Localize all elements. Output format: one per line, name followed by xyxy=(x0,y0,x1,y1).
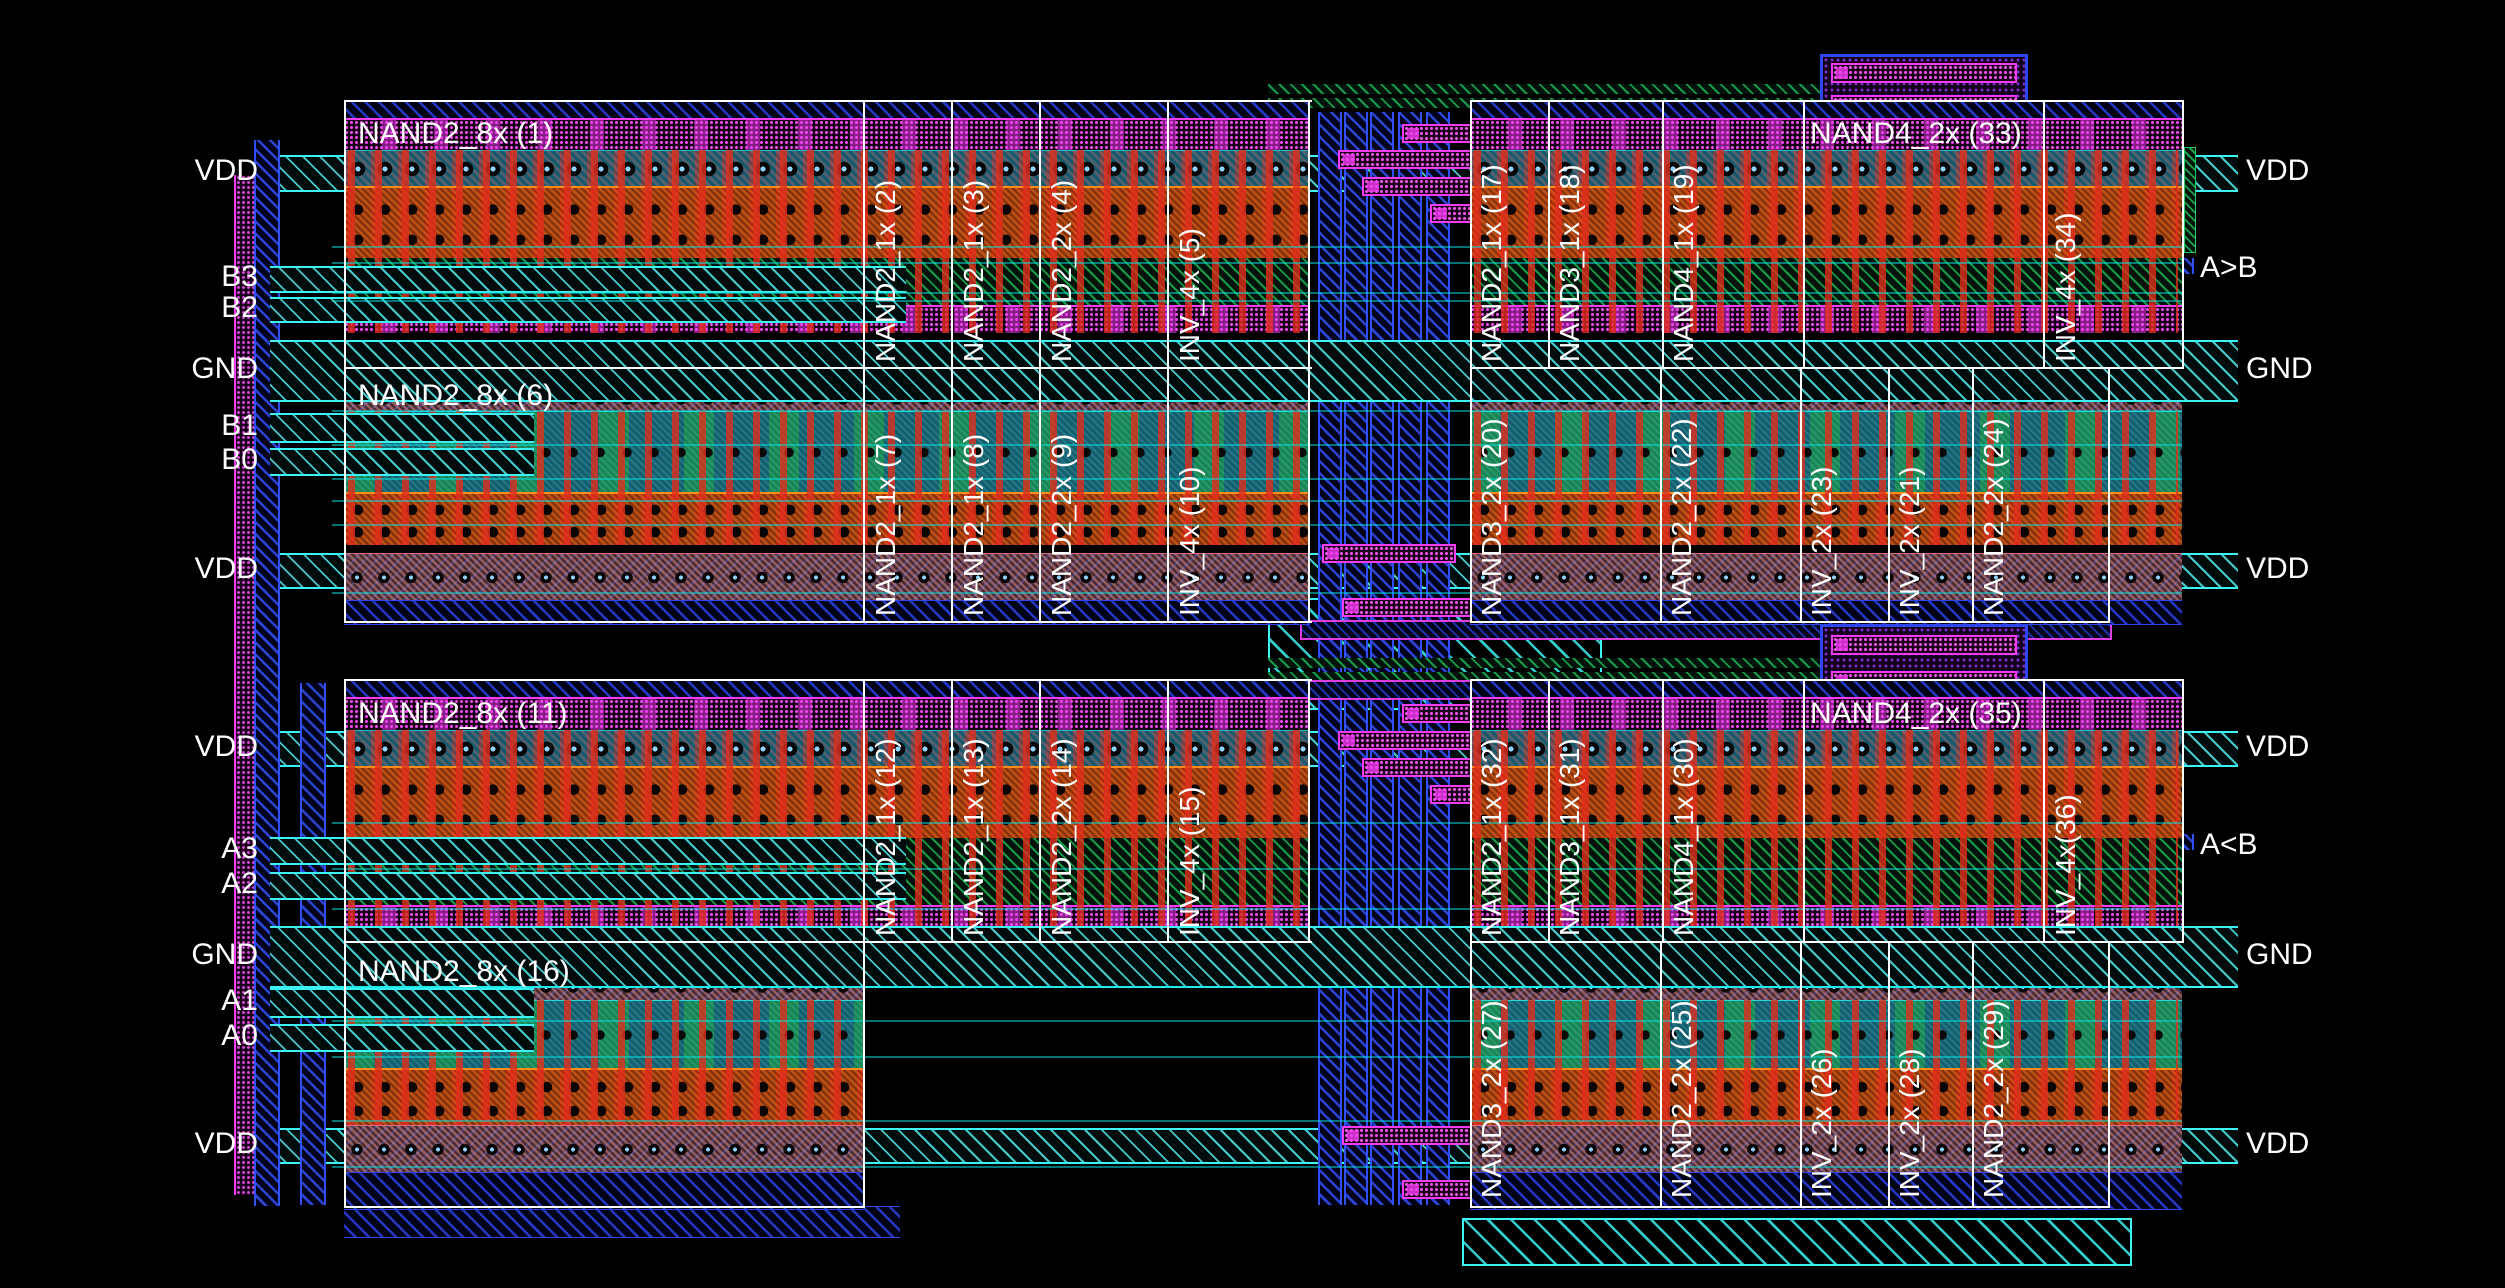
cell-label-nand3-2x-20[interactable]: NAND3_2x (20) xyxy=(1474,376,1510,616)
cell-label-nand2-1x-8[interactable]: NAND2_1x (8) xyxy=(956,376,992,616)
cell-boundary xyxy=(2043,679,2045,943)
cell-label-nand2-8x-11[interactable]: NAND2_8x (11) xyxy=(358,698,568,730)
layout-canvas[interactable]: VDD B3 B2 GND B1 B0 VDD VDD A3 A2 GND A1… xyxy=(0,0,2505,1288)
cell-boundary xyxy=(1660,943,1662,1208)
cell-boundary xyxy=(1972,368,1974,623)
cell-boundary xyxy=(1039,100,1041,623)
cell-label-nand2-2x-22[interactable]: NAND2_2x (22) xyxy=(1664,376,1700,616)
cell-boundary xyxy=(1167,679,1169,943)
via-strap xyxy=(1322,544,1456,563)
pin-band-b1 xyxy=(270,413,534,443)
cell-label-nand2-2x-25[interactable]: NAND2_2x (25) xyxy=(1664,950,1700,1198)
pin-label-vdd[interactable]: VDD xyxy=(2246,1127,2309,1161)
cell-label-inv-2x-26[interactable]: INV_2x (26) xyxy=(1804,950,1840,1198)
cell-label-nand2-2x-29[interactable]: NAND2_2x (29) xyxy=(1976,950,2012,1198)
cell-boundary xyxy=(1470,367,2184,369)
routing-trace xyxy=(332,246,2182,248)
cell-label-inv-4x-5[interactable]: INV_4x (5) xyxy=(1172,106,1208,362)
cell-boundary xyxy=(2108,943,2110,1208)
routing-trace xyxy=(332,908,2182,910)
pin-label-vdd[interactable]: VDD xyxy=(150,730,258,764)
pin-band-b3 xyxy=(270,266,906,293)
pin-label-a3[interactable]: A3 xyxy=(150,832,258,866)
cell-boundary xyxy=(951,679,953,943)
cell-boundary xyxy=(2182,100,2184,368)
routing-trace xyxy=(332,822,2182,824)
cell-boundary xyxy=(2043,100,2045,368)
cell-label-inv-4x-34[interactable]: INV_4x (34) xyxy=(2048,106,2084,362)
cell-label-nand2-1x-3[interactable]: NAND2_1x (3) xyxy=(956,106,992,362)
pin-label-vdd[interactable]: VDD xyxy=(2246,552,2309,586)
cell-boundary xyxy=(1800,943,1802,1208)
pin-band-a2 xyxy=(270,872,906,900)
metal-bus-strap xyxy=(344,1206,900,1238)
cell-boundary xyxy=(1800,368,1802,623)
cell-label-nand2-1x-13[interactable]: NAND2_1x (13) xyxy=(956,686,992,936)
cell-label-nand2-2x-4[interactable]: NAND2_2x (4) xyxy=(1044,106,1080,362)
rail-gap xyxy=(344,545,1310,553)
via-strap xyxy=(1831,63,2017,83)
cell-boundary xyxy=(1470,679,1472,1208)
routing-channel-block xyxy=(1462,1218,2132,1266)
pin-band-a1 xyxy=(270,988,534,1018)
well-routing-band xyxy=(1268,84,1858,94)
cell-boundary xyxy=(1972,943,1974,1208)
cell-boundary xyxy=(863,100,865,623)
cell-label-inv-4x-10[interactable]: INV_4x (10) xyxy=(1172,376,1208,616)
cell-boundary xyxy=(1888,368,1890,623)
cell-label-nand4-1x-19[interactable]: NAND4_1x (19) xyxy=(1666,106,1702,362)
cell-boundary xyxy=(1167,100,1169,623)
pin-label-a0[interactable]: A0 xyxy=(150,1019,258,1053)
pin-band-a0 xyxy=(270,1024,534,1052)
cell-label-nand3-2x-27[interactable]: NAND3_2x (27) xyxy=(1474,950,1510,1198)
cell-label-nand3-1x-31[interactable]: NAND3_1x (31) xyxy=(1552,686,1588,936)
routing-trace xyxy=(332,262,2182,264)
pin-label-gnd[interactable]: GND xyxy=(150,352,258,386)
rail-strap xyxy=(344,553,1310,602)
cell-boundary xyxy=(1470,1206,2110,1208)
pin-label-b2[interactable]: B2 xyxy=(150,291,258,325)
cell-label-nand4-1x-30[interactable]: NAND4_1x (30) xyxy=(1666,686,1702,936)
cell-boundary xyxy=(1548,100,1550,368)
pin-band-b0 xyxy=(270,448,534,476)
cell-label-nand3-1x-18[interactable]: NAND3_1x (18) xyxy=(1552,106,1588,362)
pin-label-a-gt-b[interactable]: A>B xyxy=(2200,251,2258,285)
cell-label-nand4-2x-33[interactable]: NAND4_2x (33) xyxy=(1810,118,2022,150)
cell-label-nand2-8x-16[interactable]: NAND2_8x (16) xyxy=(358,956,570,988)
pin-label-b0[interactable]: B0 xyxy=(150,443,258,477)
cell-boundary xyxy=(951,100,953,623)
cell-label-nand2-2x-24[interactable]: NAND2_2x (24) xyxy=(1976,376,2012,616)
poly-fingers xyxy=(348,1000,859,1125)
cell-boundary xyxy=(1888,943,1890,1208)
cell-boundary xyxy=(1470,100,2184,102)
cell-boundary xyxy=(1308,679,1310,943)
cell-label-nand2-1x-17[interactable]: NAND2_1x (17) xyxy=(1474,106,1510,362)
cell-boundary xyxy=(344,679,346,1208)
cell-boundary xyxy=(1662,679,1664,943)
cell-label-nand2-1x-7[interactable]: NAND2_1x (7) xyxy=(868,376,904,616)
pin-label-a-lt-b[interactable]: A<B xyxy=(2200,828,2258,862)
pin-label-a2[interactable]: A2 xyxy=(150,867,258,901)
pin-label-b3[interactable]: B3 xyxy=(150,260,258,294)
routing-trace xyxy=(332,292,2182,294)
cell-label-nand2-1x-2[interactable]: NAND2_1x (2) xyxy=(868,106,904,362)
output-stub xyxy=(2184,147,2196,253)
pin-label-gnd[interactable]: GND xyxy=(2246,938,2313,972)
cell-boundary xyxy=(1470,100,1472,623)
pin-band-a3 xyxy=(270,837,906,865)
pin-label-vdd[interactable]: VDD xyxy=(2246,154,2309,188)
cell-boundary xyxy=(1660,368,1662,623)
pin-label-vdd[interactable]: VDD xyxy=(150,552,258,586)
cell-label-nand2-2x-14[interactable]: NAND2_2x (14) xyxy=(1044,686,1080,936)
pin-label-vdd[interactable]: VDD xyxy=(150,154,258,188)
cell-boundary xyxy=(1662,100,1664,368)
metal-band xyxy=(344,1172,863,1210)
cell-boundary xyxy=(863,679,865,1208)
cell-boundary xyxy=(1548,679,1550,943)
cell-label-inv-2x-28[interactable]: INV_2x (28) xyxy=(1892,950,1928,1198)
cell-boundary xyxy=(1470,621,2110,623)
pin-label-gnd[interactable]: GND xyxy=(2246,352,2313,386)
cell-boundary xyxy=(1803,679,1805,943)
cell-label-inv-4x-15[interactable]: INV_4x (15) xyxy=(1172,686,1208,936)
cell-label-nand2-1x-12[interactable]: NAND2_1x (12) xyxy=(868,686,904,936)
cell-boundary xyxy=(2182,679,2184,943)
cell-label-nand2-8x-1[interactable]: NAND2_8x (1) xyxy=(358,118,553,150)
cell-label-inv-4x-36[interactable]: INV_4x(36) xyxy=(2048,686,2084,936)
well-routing-band xyxy=(1268,658,1858,668)
cell-label-inv-2x-21[interactable]: INV_2x (21) xyxy=(1892,376,1928,616)
gnd-rail-band xyxy=(270,340,2238,402)
metal-band xyxy=(344,679,1310,699)
routing-trace xyxy=(332,868,2182,870)
pin-label-b1[interactable]: B1 xyxy=(150,409,258,443)
pin-label-vdd[interactable]: VDD xyxy=(2246,730,2309,764)
cell-label-nand2-1x-32[interactable]: NAND2_1x (32) xyxy=(1474,686,1510,936)
cell-boundary xyxy=(1470,679,2184,681)
cell-boundary xyxy=(344,1206,865,1208)
cell-boundary xyxy=(344,100,346,623)
pin-label-gnd[interactable]: GND xyxy=(150,938,258,972)
cell-label-inv-2x-23[interactable]: INV_2x (23) xyxy=(1804,376,1840,616)
cell-label-nand2-2x-9[interactable]: NAND2_2x (9) xyxy=(1044,376,1080,616)
poly-fingers xyxy=(348,730,1306,930)
via-strap xyxy=(1831,635,2017,655)
pin-label-a1[interactable]: A1 xyxy=(150,984,258,1018)
cell-boundary xyxy=(1470,941,2184,943)
routing-trace xyxy=(332,300,2182,302)
pin-label-vdd[interactable]: VDD xyxy=(150,1127,258,1161)
cell-boundary xyxy=(1039,679,1041,943)
cell-boundary xyxy=(1803,100,1805,368)
cell-label-nand4-2x-35[interactable]: NAND4_2x (35) xyxy=(1810,698,2022,730)
cell-boundary xyxy=(1308,100,1310,623)
cell-boundary xyxy=(2108,368,2110,623)
cell-label-nand2-8x-6[interactable]: NAND2_8x (6) xyxy=(358,380,553,412)
